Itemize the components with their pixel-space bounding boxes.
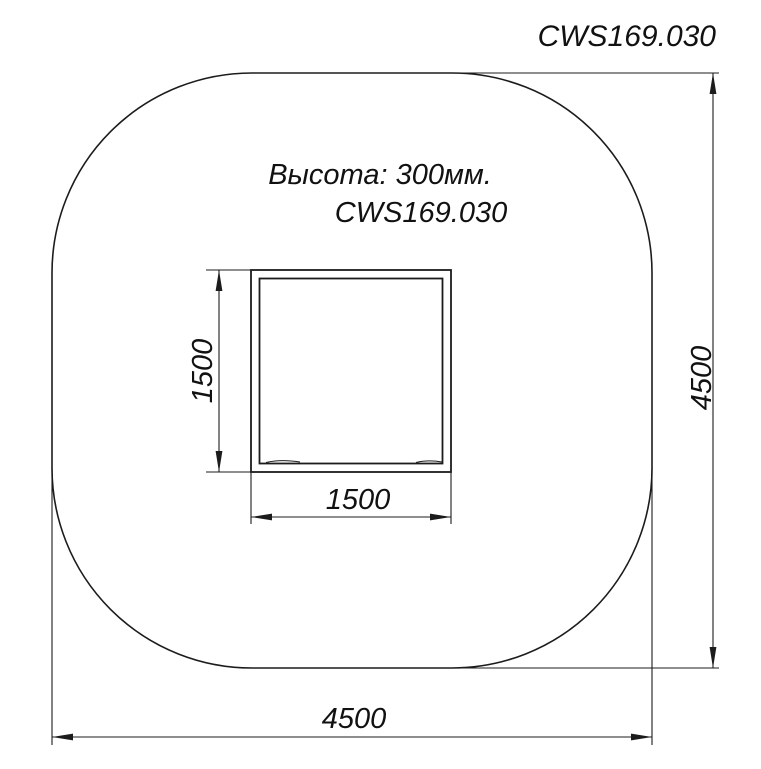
arrowhead-right-icon	[430, 514, 451, 521]
arrowhead-up-icon	[710, 73, 717, 94]
arrowhead-left-icon	[251, 514, 272, 521]
arrowhead-down-icon	[216, 451, 223, 472]
arrowhead-down-icon	[710, 647, 717, 668]
drawing-annotations: CWS169.030 Высота: 300мм. CWS169.030 150…	[187, 20, 718, 735]
height-note-label: Высота: 300мм.	[268, 159, 492, 191]
drawing-canvas: CWS169.030 Высота: 300мм. CWS169.030 150…	[0, 0, 761, 769]
surface-mark-right	[416, 461, 442, 463]
dim-outer-height-group	[452, 73, 719, 668]
dim-inner-width-value: 1500	[326, 484, 391, 516]
frame-inner-square	[260, 279, 443, 464]
dim-inner-height-value: 1500	[187, 339, 219, 404]
arrowhead-up-icon	[216, 270, 223, 291]
arrowhead-left-icon	[52, 734, 73, 741]
arrowhead-right-icon	[631, 734, 652, 741]
drawing-title: CWS169.030	[538, 20, 717, 53]
dim-outer-height-value: 4500	[686, 346, 718, 411]
dim-outer-width-value: 4500	[322, 703, 387, 735]
surface-mark-left	[266, 461, 300, 463]
part-number-label: CWS169.030	[335, 197, 508, 229]
technical-drawing: CWS169.030 Высота: 300мм. CWS169.030 150…	[0, 0, 761, 769]
frame-outer-square	[251, 270, 451, 472]
